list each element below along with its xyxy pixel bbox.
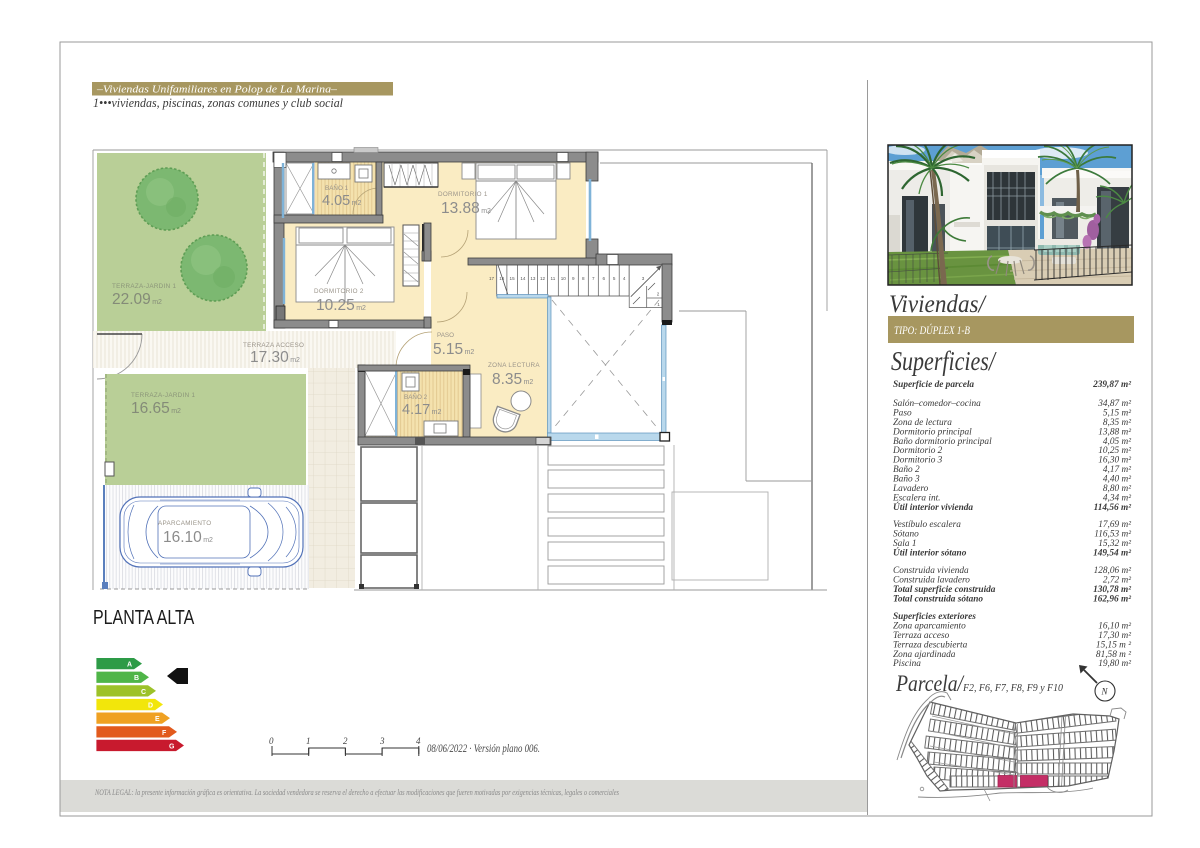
svg-text:PASO: PASO xyxy=(437,332,454,339)
svg-text:162,96 m²: 162,96 m² xyxy=(1093,594,1131,604)
svg-text:7: 7 xyxy=(592,276,595,281)
svg-text:4: 4 xyxy=(416,736,421,746)
svg-text:B: B xyxy=(134,675,139,682)
svg-text:0: 0 xyxy=(269,736,274,746)
svg-text:Viviendas/: Viviendas/ xyxy=(889,291,987,318)
svg-text:16,10 m²: 16,10 m² xyxy=(1098,621,1131,631)
svg-text:16: 16 xyxy=(499,276,505,281)
svg-text:5: 5 xyxy=(613,276,616,281)
svg-text:15: 15 xyxy=(510,276,516,281)
svg-text:Piscina: Piscina xyxy=(892,659,921,669)
svg-text:Sótano: Sótano xyxy=(893,529,919,539)
svg-text:BAÑO 2: BAÑO 2 xyxy=(404,392,428,401)
svg-text:2: 2 xyxy=(343,736,348,746)
svg-text:Superficies/: Superficies/ xyxy=(891,346,997,376)
svg-text:DORMITORIO 2: DORMITORIO 2 xyxy=(314,288,364,295)
svg-text:3: 3 xyxy=(379,736,385,746)
svg-text:BAÑO 1: BAÑO 1 xyxy=(325,183,349,192)
svg-text:PLANTA ALTA: PLANTA ALTA xyxy=(93,605,195,628)
svg-text:Paso: Paso xyxy=(892,409,912,419)
svg-text:2: 2 xyxy=(657,292,660,297)
svg-text:N: N xyxy=(1101,687,1109,697)
svg-text:10: 10 xyxy=(561,276,567,281)
svg-text:19,80 m²: 19,80 m² xyxy=(1098,659,1131,669)
svg-text:NOTA LEGAL: la presente inform: NOTA LEGAL: la presente información gráf… xyxy=(94,788,619,797)
svg-text:12: 12 xyxy=(540,276,546,281)
svg-text:F: F xyxy=(162,730,167,737)
svg-text:08/06/2022 · Versión plano 006: 08/06/2022 · Versión plano 006. xyxy=(427,743,540,755)
svg-text:Zona aparcamiento: Zona aparcamiento xyxy=(893,621,966,631)
svg-text:DORMITORIO 1: DORMITORIO 1 xyxy=(438,191,488,198)
svg-text:Construida lavadero: Construida lavadero xyxy=(893,575,970,585)
svg-text:17: 17 xyxy=(489,276,495,281)
svg-text:13: 13 xyxy=(530,276,536,281)
svg-text:10,25 m²: 10,25 m² xyxy=(1098,446,1131,456)
svg-text:34,87 m²: 34,87 m² xyxy=(1097,399,1131,409)
svg-text:D: D xyxy=(148,703,153,710)
svg-text:TERRAZA-JARDIN 1: TERRAZA-JARDIN 1 xyxy=(131,392,195,399)
svg-text:Escalera int.: Escalera int. xyxy=(892,493,941,503)
svg-text:C: C xyxy=(141,689,146,696)
svg-text:114,56 m²: 114,56 m² xyxy=(1094,503,1132,513)
svg-text:2,72 m²: 2,72 m² xyxy=(1103,575,1131,585)
svg-text:4: 4 xyxy=(623,276,626,281)
svg-text:Útil interior sótano: Útil interior sótano xyxy=(893,546,967,558)
svg-text:Total construida sótano: Total construida sótano xyxy=(893,594,983,604)
svg-text:APARCAMIENTO: APARCAMIENTO xyxy=(158,520,211,527)
svg-text:6: 6 xyxy=(603,276,606,281)
svg-text:Dormitorio 2: Dormitorio 2 xyxy=(892,446,943,456)
svg-text:1: 1 xyxy=(657,302,660,307)
svg-text:–Viviendas Unifamiliares en Po: –Viviendas Unifamiliares en Polop de La … xyxy=(96,83,338,95)
svg-text:1: 1 xyxy=(306,736,311,746)
svg-text:E: E xyxy=(155,716,160,723)
svg-text:ZONA LECTURA: ZONA LECTURA xyxy=(488,362,540,369)
svg-text:Útil interior vivienda: Útil interior vivienda xyxy=(893,501,973,513)
svg-text:3: 3 xyxy=(642,276,645,281)
svg-text:TIPO: DÚPLEX 1-B: TIPO: DÚPLEX 1-B xyxy=(894,323,970,337)
svg-text:G: G xyxy=(169,743,175,750)
svg-text:8: 8 xyxy=(582,276,585,281)
svg-text:TERRAZA-JARDIN 1: TERRAZA-JARDIN 1 xyxy=(112,283,176,290)
svg-text:116,53 m²: 116,53 m² xyxy=(1094,529,1131,539)
svg-text:Salón–comedor–cocina: Salón–comedor–cocina xyxy=(893,399,981,409)
svg-text:149,54 m²: 149,54 m² xyxy=(1093,548,1131,558)
svg-text:Superficie de parcela: Superficie de parcela xyxy=(893,380,974,390)
svg-text:4,34 m²: 4,34 m² xyxy=(1103,493,1131,503)
svg-text:Baño 2: Baño 2 xyxy=(893,465,920,475)
svg-text:11: 11 xyxy=(551,276,556,281)
svg-text:Terraza descubierta: Terraza descubierta xyxy=(893,640,968,650)
svg-text:A: A xyxy=(127,662,132,669)
svg-text:14: 14 xyxy=(520,276,526,281)
svg-text:239,87 m²: 239,87 m² xyxy=(1092,380,1131,390)
svg-text:1•••viviendas, piscinas, zonas: 1•••viviendas, piscinas, zonas comunes y… xyxy=(93,96,344,110)
svg-text:4,17 m²: 4,17 m² xyxy=(1103,465,1131,475)
svg-text:5,15 m²: 5,15 m² xyxy=(1103,409,1131,419)
svg-text:15,15 m ²: 15,15 m ² xyxy=(1096,640,1131,650)
svg-text:9: 9 xyxy=(572,276,575,281)
svg-text:TERRAZA ACCESO: TERRAZA ACCESO xyxy=(243,342,304,349)
